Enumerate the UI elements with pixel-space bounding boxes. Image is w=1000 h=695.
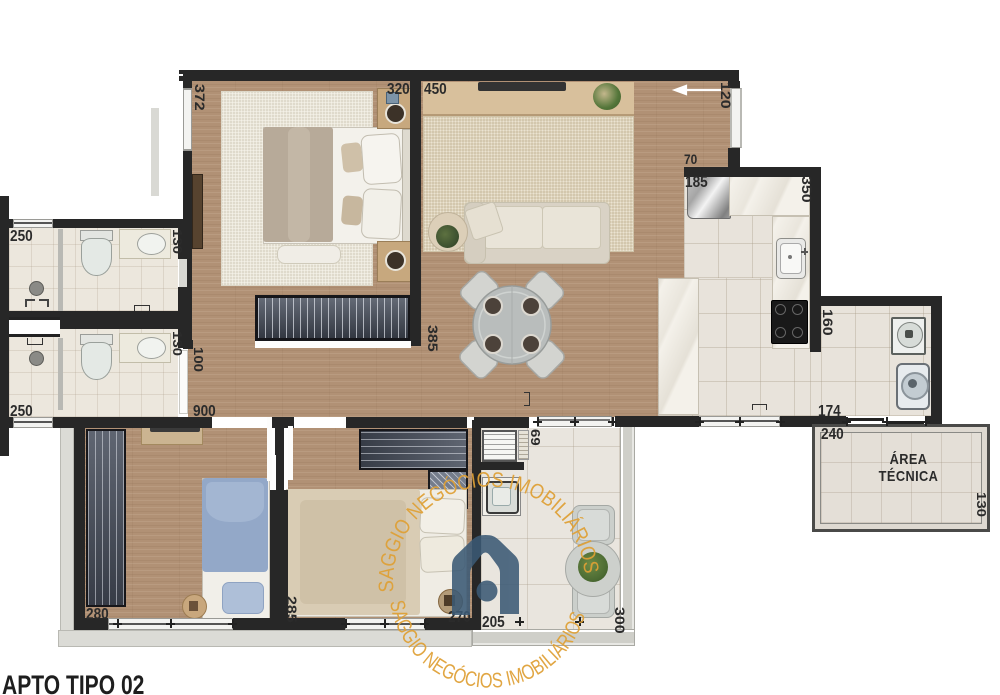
svg-text:SAGGIO NEGÓCIOS IMOBILIÁRIOS: SAGGIO NEGÓCIOS IMOBILIÁRIOS [375, 468, 603, 592]
svg-text:SAGGIO NEGÓCIOS IMOBILIÁRIOS: SAGGIO NEGÓCIOS IMOBILIÁRIOS [385, 598, 590, 692]
